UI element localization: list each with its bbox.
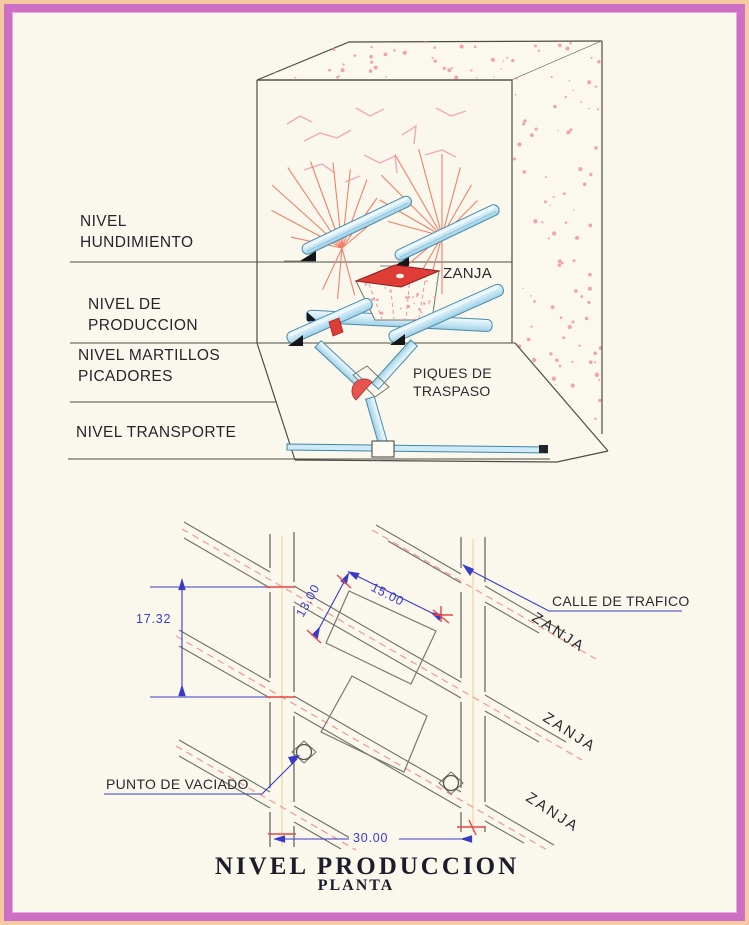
label-nivel-produccion-1: NIVEL DE: [88, 296, 161, 313]
mining-method-diagram: NIVEL HUNDIMIENTO NIVEL DE PRODUCCION NI…: [0, 0, 749, 925]
transport-junction-box: [372, 441, 394, 457]
label-nivel-hundimiento-2: HUNDIMIENTO: [80, 234, 193, 251]
label-nivel-martillos-1: NIVEL MARTILLOS: [78, 347, 220, 364]
zanja-drift-walls: [179, 522, 566, 849]
dimensions: 17.32 13.00 15.00 30.00: [132, 576, 471, 845]
diagram-canvas: NIVEL HUNDIMIENTO NIVEL DE PRODUCCION NI…: [4, 4, 749, 925]
undercut-drift-right: [380, 203, 501, 266]
label-nivel-martillos-2: PICADORES: [78, 368, 173, 385]
label-piques-2: TRASPASO: [413, 383, 491, 399]
dim-15-00: 15.00: [369, 580, 407, 608]
production-level-plan-view: 17.32 13.00 15.00 30.00: [104, 522, 690, 894]
dim-30-00: 30.00: [353, 831, 388, 845]
label-punto-de-vaciado: PUNTO DE VACIADO: [106, 776, 249, 792]
label-calle-de-trafico: CALLE DE TRAFICO: [552, 593, 690, 609]
label-zanja-iso: ZANJA: [443, 265, 492, 282]
plan-subtitle: PLANTA: [318, 877, 395, 894]
label-nivel-produccion-2: PRODUCCION: [88, 317, 198, 334]
plan-title: NIVEL PRODUCCION: [215, 853, 519, 880]
dim-13-00: 13.00: [293, 582, 322, 620]
dim-17-32: 17.32: [136, 612, 171, 626]
label-zanja-plan-3: ZANJA: [523, 789, 583, 836]
isometric-block-view: NIVEL HUNDIMIENTO NIVEL DE PRODUCCION NI…: [68, 39, 609, 462]
label-piques-1: PIQUES DE: [413, 365, 492, 381]
label-nivel-transporte: NIVEL TRANSPORTE: [76, 424, 236, 441]
label-nivel-hundimiento-1: NIVEL: [80, 213, 127, 230]
